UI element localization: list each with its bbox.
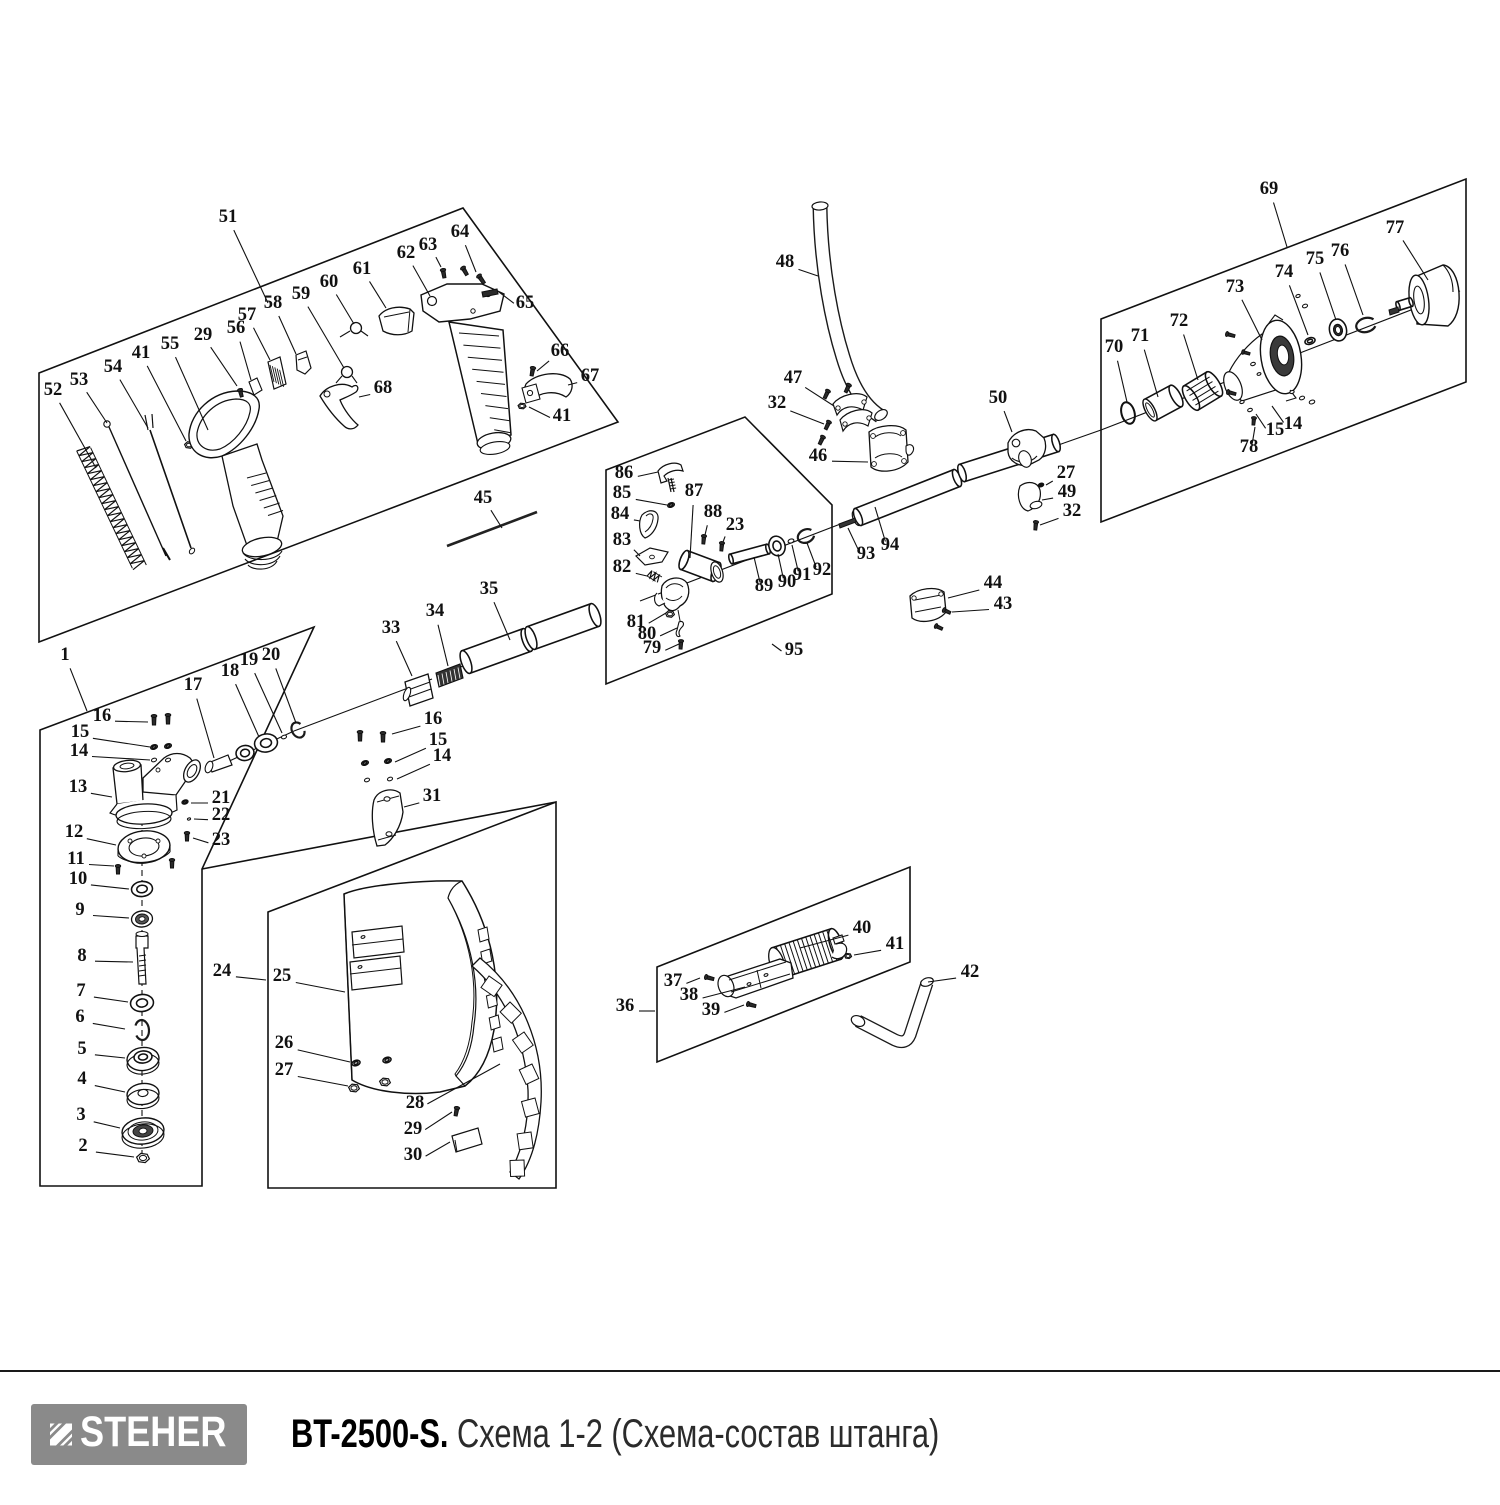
- svg-text:18: 18: [221, 661, 240, 681]
- svg-text:52: 52: [44, 380, 63, 400]
- svg-text:36: 36: [616, 996, 635, 1016]
- svg-text:89: 89: [755, 576, 774, 596]
- svg-text:47: 47: [784, 368, 803, 388]
- svg-text:73: 73: [1226, 277, 1245, 297]
- svg-text:57: 57: [238, 305, 257, 325]
- svg-text:5: 5: [77, 1039, 86, 1059]
- svg-text:17: 17: [184, 675, 203, 695]
- svg-text:30: 30: [404, 1145, 423, 1165]
- svg-text:87: 87: [685, 481, 704, 501]
- svg-text:9: 9: [75, 900, 84, 920]
- svg-text:20: 20: [262, 645, 281, 665]
- svg-text:15: 15: [1266, 420, 1285, 440]
- svg-text:61: 61: [353, 259, 372, 279]
- svg-text:44: 44: [984, 573, 1003, 593]
- svg-text:15: 15: [71, 722, 90, 742]
- svg-text:92: 92: [813, 560, 832, 580]
- svg-text:45: 45: [474, 488, 493, 508]
- svg-text:6: 6: [75, 1007, 84, 1027]
- svg-text:29: 29: [194, 325, 213, 345]
- svg-text:39: 39: [702, 1000, 721, 1020]
- svg-text:93: 93: [857, 544, 876, 564]
- svg-text:13: 13: [69, 777, 88, 797]
- svg-text:42: 42: [961, 962, 980, 982]
- svg-text:16: 16: [93, 706, 112, 726]
- svg-text:23: 23: [726, 515, 745, 535]
- svg-text:85: 85: [613, 483, 632, 503]
- svg-text:19: 19: [240, 650, 259, 670]
- svg-text:8: 8: [77, 946, 86, 966]
- svg-text:41: 41: [553, 406, 572, 426]
- svg-text:14: 14: [433, 746, 452, 766]
- svg-text:34: 34: [426, 601, 445, 621]
- svg-text:74: 74: [1275, 262, 1294, 282]
- svg-text:75: 75: [1306, 249, 1325, 269]
- svg-text:40: 40: [853, 918, 872, 938]
- svg-text:2: 2: [78, 1136, 87, 1156]
- svg-text:1: 1: [60, 645, 69, 665]
- svg-text:69: 69: [1260, 179, 1279, 199]
- svg-text:31: 31: [423, 786, 442, 806]
- svg-text:25: 25: [273, 966, 292, 986]
- svg-text:95: 95: [785, 640, 804, 660]
- svg-text:11: 11: [67, 849, 84, 869]
- svg-text:26: 26: [275, 1033, 294, 1053]
- svg-text:78: 78: [1240, 437, 1259, 457]
- svg-text:83: 83: [613, 530, 632, 550]
- svg-text:24: 24: [213, 961, 232, 981]
- svg-text:82: 82: [613, 557, 632, 577]
- svg-text:32: 32: [768, 393, 787, 413]
- svg-text:76: 76: [1331, 241, 1350, 261]
- svg-text:50: 50: [989, 388, 1008, 408]
- svg-text:70: 70: [1105, 337, 1124, 357]
- svg-text:23: 23: [212, 830, 231, 850]
- svg-text:72: 72: [1170, 311, 1189, 331]
- svg-text:77: 77: [1386, 218, 1405, 238]
- svg-text:14: 14: [70, 741, 89, 761]
- svg-text:10: 10: [69, 869, 88, 889]
- svg-text:29: 29: [404, 1119, 423, 1139]
- svg-text:66: 66: [551, 341, 570, 361]
- svg-text:91: 91: [793, 565, 812, 585]
- svg-text:46: 46: [809, 446, 828, 466]
- svg-text:64: 64: [451, 222, 470, 242]
- svg-text:32: 32: [1063, 501, 1082, 521]
- svg-text:84: 84: [611, 504, 630, 524]
- svg-text:3: 3: [76, 1105, 85, 1125]
- svg-text:60: 60: [320, 272, 339, 292]
- svg-text:49: 49: [1058, 482, 1077, 502]
- svg-text:55: 55: [161, 334, 180, 354]
- svg-text:27: 27: [1057, 463, 1076, 483]
- svg-text:86: 86: [615, 463, 634, 483]
- svg-text:48: 48: [776, 252, 795, 272]
- svg-text:59: 59: [292, 284, 311, 304]
- svg-text:71: 71: [1131, 326, 1150, 346]
- svg-text:67: 67: [581, 366, 600, 386]
- svg-text:12: 12: [65, 822, 84, 842]
- svg-text:27: 27: [275, 1060, 294, 1080]
- svg-text:53: 53: [70, 370, 89, 390]
- svg-text:16: 16: [424, 709, 443, 729]
- svg-text:14: 14: [1284, 414, 1303, 434]
- svg-text:41: 41: [132, 343, 151, 363]
- svg-text:7: 7: [76, 981, 85, 1001]
- svg-text:35: 35: [480, 579, 499, 599]
- svg-text:38: 38: [680, 985, 699, 1005]
- svg-text:33: 33: [382, 618, 401, 638]
- svg-text:63: 63: [419, 235, 438, 255]
- svg-text:62: 62: [397, 243, 416, 263]
- svg-text:41: 41: [886, 934, 905, 954]
- svg-text:22: 22: [212, 805, 231, 825]
- svg-text:4: 4: [77, 1069, 86, 1089]
- svg-text:28: 28: [406, 1093, 425, 1113]
- svg-text:51: 51: [219, 207, 238, 227]
- svg-text:79: 79: [643, 638, 662, 658]
- svg-text:58: 58: [264, 293, 283, 313]
- svg-text:65: 65: [516, 293, 535, 313]
- svg-text:68: 68: [374, 378, 393, 398]
- svg-text:88: 88: [704, 502, 723, 522]
- svg-text:94: 94: [881, 535, 900, 555]
- svg-text:54: 54: [104, 357, 123, 377]
- svg-text:43: 43: [994, 594, 1013, 614]
